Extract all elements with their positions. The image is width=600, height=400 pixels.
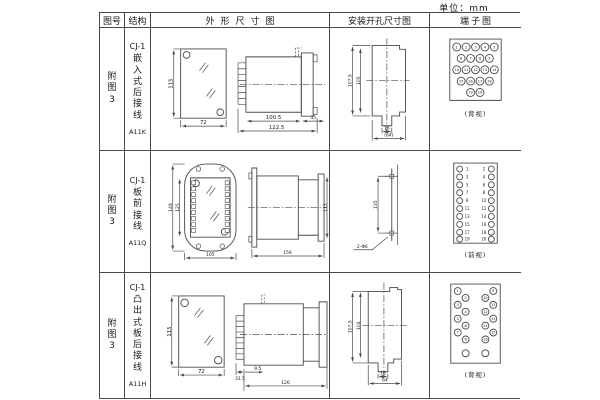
model-label: CJ-1 xyxy=(130,176,146,185)
manual-page: { "unit_label": "单位：mm", "headers": { "f… xyxy=(0,0,600,400)
svg-text:9: 9 xyxy=(492,289,494,293)
outline-diagram-a11k: 115 72 100.5 122.5 35 xyxy=(151,29,329,150)
svg-text:8: 8 xyxy=(483,190,486,195)
svg-text:1: 1 xyxy=(466,166,469,171)
row2-structure: CJ-1 板前接线 A11Q xyxy=(125,151,151,273)
view-label: (背视) xyxy=(465,370,487,379)
outline-diagram-a11h: 115 72 31.5 9.5 126 xyxy=(151,274,329,397)
terminal-circles-left: 135791113151719 xyxy=(457,166,470,242)
svg-text:3: 3 xyxy=(466,174,469,179)
svg-text:12: 12 xyxy=(473,68,478,72)
terminal-circles: 12345 6789 1011121314 15161718 1920 xyxy=(453,43,498,96)
dim-pin-length: 31.5 xyxy=(235,376,245,382)
install-diagram-a11k: 107.5 105 16 (64) xyxy=(331,29,429,150)
front-view: 149 125 105 xyxy=(168,164,236,260)
structure-type-label: 板前接线 xyxy=(133,188,142,233)
dim-width: 72 xyxy=(200,120,207,126)
svg-text:12: 12 xyxy=(483,310,488,314)
svg-text:19: 19 xyxy=(468,90,473,94)
dim-total-length: 122.5 xyxy=(269,125,285,131)
dim-overall-width: (64) xyxy=(384,132,393,138)
svg-text:1: 1 xyxy=(456,45,458,49)
svg-text:18: 18 xyxy=(487,79,492,83)
svg-text:17: 17 xyxy=(478,79,483,83)
row2-fig-no: 附图3 xyxy=(100,151,125,273)
svg-text:9: 9 xyxy=(488,56,490,60)
header-outline: 外形尺寸图 xyxy=(151,13,330,28)
dim-hole-spacing: 135 xyxy=(373,200,379,209)
front-view: 115 72 xyxy=(167,296,224,376)
structure-type-label: 凸出式板后接线 xyxy=(133,295,142,374)
view-label: (前视) xyxy=(465,249,487,258)
dim-height: 115 xyxy=(169,78,175,88)
svg-text:5: 5 xyxy=(466,182,469,187)
row3-fig-no: 附图3 xyxy=(100,273,125,398)
dim-height: 115 xyxy=(167,326,173,336)
install-diagram-a11q: 135 2-Φ6 xyxy=(331,152,429,272)
svg-text:1: 1 xyxy=(457,289,459,293)
svg-text:11: 11 xyxy=(465,206,471,211)
svg-text:4: 4 xyxy=(483,174,486,179)
terminal-circles-right: 2468101214161820 xyxy=(481,166,494,242)
row2-terminal-cell: 135791113151719 2468101214161820 (前视) xyxy=(430,151,521,273)
dim-inner-height: 105 xyxy=(355,76,361,85)
dim-width: 72 xyxy=(198,369,205,375)
svg-text:7: 7 xyxy=(457,331,459,335)
svg-text:20: 20 xyxy=(481,236,487,241)
view-label: (背视) xyxy=(465,109,487,118)
header-fig-no: 图号 xyxy=(100,13,125,28)
dim-inner-height: 104 xyxy=(355,321,361,330)
svg-text:2: 2 xyxy=(464,296,466,300)
svg-text:12: 12 xyxy=(481,206,487,211)
row1-install-cell: 107.5 105 16 (64) xyxy=(330,28,430,151)
hole-note: 2-Φ6 xyxy=(356,243,367,249)
row3-install-cell: 107.5 104 16 64 xyxy=(330,273,430,398)
dim-overall-width: 64 xyxy=(382,378,388,384)
fig-label: 附图3 xyxy=(108,72,117,106)
row1-structure: CJ-1 嵌入式后接线 A11K xyxy=(125,28,151,151)
svg-text:5: 5 xyxy=(457,317,459,321)
fig-label: 附图3 xyxy=(108,195,117,229)
terminal-circles: 12345678 910111213141516 xyxy=(454,288,497,357)
dim-slot-width: 16 xyxy=(380,371,386,377)
terminal-diagram-a11k: 12345 6789 1011121314 15161718 1920 (背视) xyxy=(431,29,520,150)
dim-body-length: 100.5 xyxy=(266,115,282,121)
row1-terminal-cell: 12345 6789 1011121314 15161718 1920 (背视) xyxy=(430,28,521,151)
terminal-diagram-a11h: 12345678 910111213141516 (背视) xyxy=(431,274,520,397)
dim-total-length: 126 xyxy=(281,380,290,386)
svg-text:7: 7 xyxy=(466,190,469,195)
dim-outer-height: 149 xyxy=(168,203,174,212)
svg-text:19: 19 xyxy=(465,236,471,241)
dim-outer-height: 107.5 xyxy=(347,74,353,87)
dim-flange-length: 35 xyxy=(310,115,316,121)
outline-diagram-a11q: 149 125 105 156 115 xyxy=(151,152,329,272)
row1-fig-no: 附图3 xyxy=(100,28,125,151)
svg-text:20: 20 xyxy=(478,90,483,94)
dim-outer-height: 107.5 xyxy=(347,320,353,333)
svg-text:10: 10 xyxy=(481,198,487,203)
svg-text:10: 10 xyxy=(483,296,488,300)
type-code-label: A11Q xyxy=(129,239,147,247)
terminal-diagram-a11q: 135791113151719 2468101214161820 (前视) xyxy=(431,152,520,272)
header-terminal: 端子图 xyxy=(430,13,521,28)
dim-height: 115 xyxy=(323,203,329,212)
svg-text:5: 5 xyxy=(493,45,495,49)
dim-length: 156 xyxy=(283,250,292,256)
side-view: 156 115 xyxy=(248,167,329,257)
svg-text:14: 14 xyxy=(483,324,488,328)
svg-text:15: 15 xyxy=(491,331,496,335)
dim-inner-height: 125 xyxy=(175,203,181,212)
svg-text:17: 17 xyxy=(465,229,471,234)
side-view: 100.5 122.5 35 xyxy=(238,47,325,132)
row2-outline-cell: 149 125 105 156 115 xyxy=(151,151,330,273)
svg-text:7: 7 xyxy=(469,56,471,60)
svg-text:14: 14 xyxy=(492,68,497,72)
model-label: CJ-1 xyxy=(130,283,146,292)
side-view: 31.5 9.5 126 xyxy=(235,295,327,391)
dim-slot-width: 16 xyxy=(383,125,389,131)
spec-table: 图号 结构 外形尺寸图 安装开孔尺寸图 端子图 附图3 CJ-1 嵌入式后接线 … xyxy=(99,12,520,399)
svg-text:2: 2 xyxy=(483,166,486,171)
structure-type-label: 嵌入式后接线 xyxy=(133,54,142,122)
row2-install-cell: 135 2-Φ6 xyxy=(330,151,430,273)
svg-text:13: 13 xyxy=(491,317,496,321)
front-view: 115 72 xyxy=(169,48,226,126)
row3-structure: CJ-1 凸出式板后接线 A11H xyxy=(125,273,151,398)
svg-text:2: 2 xyxy=(465,45,467,49)
svg-text:9: 9 xyxy=(466,198,469,203)
row3-outline-cell: 115 72 31.5 9.5 126 xyxy=(151,273,330,398)
type-code-label: A11H xyxy=(129,380,147,388)
svg-text:10: 10 xyxy=(454,68,459,72)
row1-outline-cell: 115 72 100.5 122.5 35 xyxy=(151,28,330,151)
svg-text:11: 11 xyxy=(491,303,496,307)
svg-text:14: 14 xyxy=(481,213,487,218)
svg-text:15: 15 xyxy=(465,221,471,226)
header-install: 安装开孔尺寸图 xyxy=(330,13,430,28)
dim-width: 105 xyxy=(206,252,215,258)
svg-text:3: 3 xyxy=(474,45,476,49)
svg-text:16: 16 xyxy=(483,338,488,342)
fig-label: 附图3 xyxy=(108,319,117,353)
svg-text:6: 6 xyxy=(483,182,486,187)
svg-text:16: 16 xyxy=(468,79,473,83)
svg-text:13: 13 xyxy=(465,213,471,218)
type-code-label: A11K xyxy=(129,128,146,136)
svg-text:18: 18 xyxy=(481,229,487,234)
svg-text:15: 15 xyxy=(459,79,464,83)
install-diagram-a11h: 107.5 104 16 64 xyxy=(331,274,429,397)
dim-offset: 9.5 xyxy=(254,366,261,372)
model-label: CJ-1 xyxy=(130,42,146,51)
header-structure: 结构 xyxy=(125,13,151,28)
svg-text:13: 13 xyxy=(483,68,488,72)
svg-text:3: 3 xyxy=(457,303,459,307)
row3-terminal-cell: 12345678 910111213141516 (背视) xyxy=(430,273,521,398)
svg-text:11: 11 xyxy=(464,68,469,72)
svg-text:16: 16 xyxy=(481,221,487,226)
